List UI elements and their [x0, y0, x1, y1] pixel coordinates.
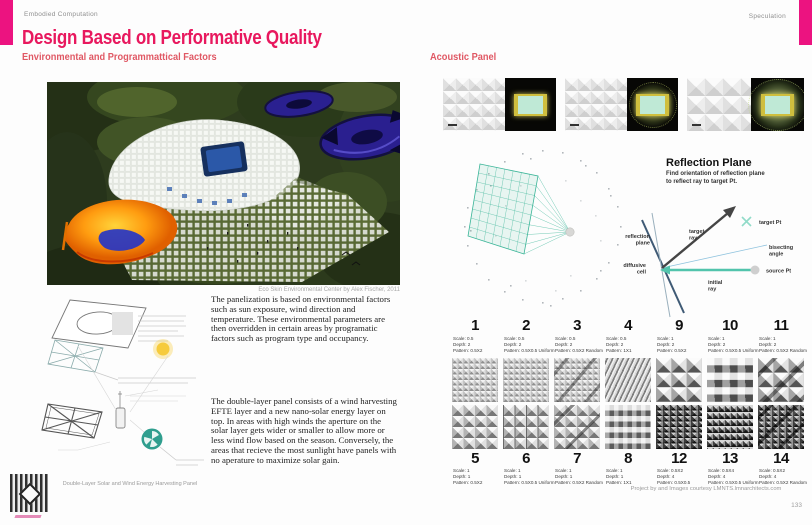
- leader-lines: [58, 346, 186, 450]
- label-ray1: ray: [689, 236, 698, 242]
- focus-point: [566, 228, 574, 236]
- pattern-pattern: Pattern: 1X1: [606, 348, 632, 354]
- pattern-tile: [605, 405, 651, 449]
- label-target-pt: target Pt: [759, 220, 781, 226]
- pattern-number: 9: [656, 317, 702, 334]
- pattern-specs: Scale: 0.5 Depth: 2 Pattern: 1X1: [606, 336, 632, 355]
- pattern-pattern: Pattern: 0.5X2 Random: [555, 348, 603, 354]
- body-paragraph-1: The panelization is based on environment…: [211, 295, 400, 344]
- acoustic-sim-image-3: [687, 78, 804, 131]
- pattern-pattern: Pattern: 0.5X2: [453, 348, 482, 354]
- pattern-specs: Scale: 1 Depth: 1 Pattern: 0.5X2: [453, 468, 482, 487]
- bisecting-line: [662, 245, 767, 268]
- panel-surface-render: [687, 78, 751, 131]
- courtyard: [200, 141, 248, 177]
- wind-generator-sketch: [116, 391, 125, 428]
- label-ray2: ray: [708, 287, 717, 293]
- pattern-specs: Scale: 0.5X2 Depth: 4 Pattern: 0.5X2 Ran…: [759, 468, 807, 487]
- book-spread: Embodied Computation Speculation Design …: [0, 0, 812, 525]
- mesh-grid: [468, 164, 538, 254]
- pattern-card-8: 8 Scale: 1 Depth: 1 Pattern: 1X1: [605, 405, 651, 495]
- sound-field-render: [505, 78, 556, 131]
- pattern-tile: [452, 405, 498, 449]
- pattern-pattern: Pattern: 0.5X0.5 Uniform: [504, 348, 555, 354]
- pattern-specs: Scale: 1 Depth: 1 Pattern: 1X1: [606, 468, 632, 487]
- pattern-card-10: 10 Scale: 1 Depth: 2 Pattern: 0.5X0.5 Un…: [707, 317, 753, 407]
- pattern-tile: [503, 358, 549, 402]
- panel-concept-sketches: [18, 292, 210, 478]
- pattern-tile: [758, 405, 804, 449]
- running-head-right: Speculation: [749, 13, 786, 20]
- label-target: target: [689, 229, 704, 235]
- pattern-specs: Scale: 0.5 Depth: 2 Pattern: 0.5X2: [453, 336, 482, 355]
- label-reflection: reflection: [625, 234, 650, 240]
- section-subtitle-left: Environmental and Programmattical Factor…: [22, 51, 217, 63]
- truss-panel-sketch: [42, 404, 102, 438]
- pattern-card-11: 11 Scale: 1 Depth: 2 Pattern: 0.5X2 Rand…: [758, 317, 804, 407]
- fan-icon: [142, 429, 163, 450]
- pattern-tile: [707, 405, 753, 449]
- pattern-specs: Scale: 1 Depth: 1 Pattern: 0.5X0.5 Unifo…: [504, 468, 555, 487]
- annotation-lines-2: [95, 372, 196, 383]
- panel-surface-render: [443, 78, 505, 131]
- sound-field-render: [627, 78, 678, 131]
- photo-caption: Eco Skin Environmental Center by Alex Fi…: [180, 287, 400, 293]
- sound-field-render: [751, 78, 804, 131]
- target-pt-marker: [742, 217, 751, 226]
- source-pt-marker: [751, 266, 760, 275]
- body-paragraph-2: The double-layer panel consists of a win…: [211, 397, 400, 466]
- label-angle: angle: [769, 252, 783, 258]
- accent-bar-right: [799, 0, 812, 45]
- pattern-card-14: 14 Scale: 0.5X2 Depth: 4 Pattern: 0.5X2 …: [758, 405, 804, 495]
- pattern-pattern: Pattern: 0.5X0.5 Uniform: [708, 348, 759, 354]
- pattern-tile: [656, 405, 702, 449]
- scale-bar: [448, 124, 457, 127]
- pattern-number: 2: [503, 317, 549, 334]
- section-subtitle-right: Acoustic Panel: [430, 51, 496, 63]
- pattern-tile: [758, 358, 804, 402]
- label-plane: plane: [636, 241, 650, 247]
- pattern-specs: Scale: 0.5 Depth: 2 Pattern: 0.5X2 Rando…: [555, 336, 603, 355]
- annotation-lines-1: [138, 316, 186, 341]
- pattern-tile: [656, 358, 702, 402]
- pattern-specs: Scale: 0.5 Depth: 2 Pattern: 0.5X0.5 Uni…: [504, 336, 555, 355]
- pattern-specs: Scale: 1 Depth: 1 Pattern: 0.5X2 Random: [555, 468, 603, 487]
- page-number: 133: [791, 502, 802, 509]
- pattern-card-6: 6 Scale: 1 Depth: 1 Pattern: 0.5X0.5 Uni…: [503, 405, 549, 495]
- pattern-tile: [707, 358, 753, 402]
- glowing-cell: [636, 94, 669, 116]
- pattern-specs: Scale: 0.5X2 Depth: 4 Pattern: 0.5X0.5: [657, 468, 690, 487]
- label-bisecting: bisecting: [769, 245, 793, 251]
- pattern-card-5: 5 Scale: 1 Depth: 1 Pattern: 0.5X2: [452, 405, 498, 495]
- pattern-thumbnail: [10, 474, 48, 512]
- scale-bar: [570, 124, 579, 127]
- reflection-title: Reflection Plane: [666, 157, 752, 169]
- pattern-tile: [503, 405, 549, 449]
- pattern-card-13: 13 Scale: 0.5X4 Depth: 4 Pattern: 0.5X0.…: [707, 405, 753, 495]
- pattern-specs: Scale: 1 Depth: 2 Pattern: 0.5X0.5 Unifo…: [708, 336, 759, 355]
- diamond-mark: [19, 483, 42, 506]
- pattern-pattern: Pattern: 0.5X2: [453, 480, 482, 486]
- acoustic-sim-image-1: [443, 78, 556, 131]
- image-credit: Project by and Images courtesy LMNTS.lmn…: [600, 486, 812, 492]
- ray-mesh-diagram: [450, 140, 635, 312]
- pattern-number: 1: [452, 317, 498, 334]
- pattern-card-9: 9 Scale: 1 Depth: 2 Pattern: 0.5X2: [656, 317, 702, 407]
- panel-surface-render: [565, 78, 627, 131]
- pattern-pattern: Pattern: 0.5X2 Random: [555, 480, 603, 486]
- pattern-number: 8: [605, 450, 651, 467]
- label-cell: cell: [637, 270, 647, 276]
- label-initial: initial: [708, 280, 723, 286]
- aerial-render-image: [47, 82, 400, 285]
- pattern-tile: [554, 358, 600, 402]
- pattern-number: 14: [758, 450, 804, 467]
- pattern-card-12: 12 Scale: 0.5X2 Depth: 4 Pattern: 0.5X0.…: [656, 405, 702, 495]
- pattern-number: 5: [452, 450, 498, 467]
- page-title: Design Based on Performative Quality: [22, 27, 322, 50]
- pattern-number: 6: [503, 450, 549, 467]
- pattern-tile: [605, 358, 651, 402]
- reflection-diagram: reflection plane diffusive cell target r…: [612, 185, 812, 320]
- accent-bar-left: [0, 0, 13, 45]
- pattern-specs: Scale: 1 Depth: 2 Pattern: 0.5X2: [657, 336, 686, 355]
- label-source-pt: source Pt: [766, 269, 791, 275]
- pattern-specs: Scale: 1 Depth: 2 Pattern: 0.5X2 Random: [759, 336, 807, 355]
- label-diffusive: diffusive: [623, 263, 646, 269]
- pattern-pattern: Pattern: 0.5X2: [657, 348, 686, 354]
- etfe-panel-sketch: [48, 340, 103, 372]
- glowing-cell: [761, 94, 794, 116]
- pattern-number: 3: [554, 317, 600, 334]
- pattern-number: 7: [554, 450, 600, 467]
- pattern-number: 10: [707, 317, 753, 334]
- pattern-number: 11: [758, 317, 804, 334]
- pattern-specs: Scale: 0.5X4 Depth: 4 Pattern: 0.5X0.5 U…: [708, 468, 759, 487]
- pattern-card-2: 2 Scale: 0.5 Depth: 2 Pattern: 0.5X0.5 U…: [503, 317, 549, 407]
- pattern-number: 4: [605, 317, 651, 334]
- running-head-left: Embodied Computation: [24, 11, 98, 18]
- pattern-tile: [452, 358, 498, 402]
- sketch-caption: Double-Layer Solar and Wind Energy Harve…: [40, 481, 220, 487]
- acoustic-sim-image-2: [565, 78, 678, 131]
- pattern-pattern: Pattern: 0.5X2 Random: [759, 348, 807, 354]
- pattern-tile: [554, 405, 600, 449]
- thumbnail-caption-mark: [14, 515, 41, 518]
- pattern-number: 12: [656, 450, 702, 467]
- scale-bar: [692, 124, 701, 127]
- pattern-number: 13: [707, 450, 753, 467]
- material-swatch: [112, 312, 133, 335]
- sun-icon: [157, 343, 170, 356]
- pattern-card-4: 4 Scale: 0.5 Depth: 2 Pattern: 1X1: [605, 317, 651, 407]
- reflection-subtitle-line1: Find orientation of reflection plane: [666, 171, 765, 179]
- pattern-card-7: 7 Scale: 1 Depth: 1 Pattern: 0.5X2 Rando…: [554, 405, 600, 495]
- annotation-lines-3: [160, 447, 204, 465]
- pattern-pattern: Pattern: 0.5X0.5 Uniform: [504, 480, 555, 486]
- pattern-card-1: 1 Scale: 0.5 Depth: 2 Pattern: 0.5X2: [452, 317, 498, 407]
- glowing-cell: [514, 94, 547, 116]
- pattern-card-3: 3 Scale: 0.5 Depth: 2 Pattern: 0.5X2 Ran…: [554, 317, 600, 407]
